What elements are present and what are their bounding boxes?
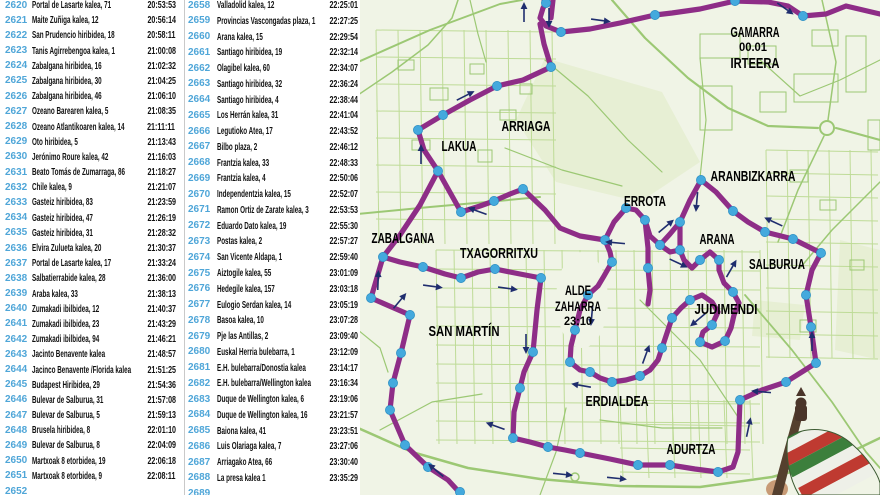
- stop-name-text: La presa kalea 1: [217, 472, 266, 484]
- checkpoint-dot: [635, 371, 644, 380]
- stop-time-text: 23:12:09: [329, 346, 358, 358]
- stop-time: 23:30:40: [316, 456, 356, 468]
- stop-time-text: 21:36:00: [147, 272, 176, 284]
- map-label-alde-zaharra-line1: ALDE: [565, 282, 591, 298]
- table-row: 2637Portal de Lasarte kalea, 1721:33:24: [0, 256, 183, 270]
- checkpoint-dot: [633, 460, 642, 469]
- checkpoint-dot: [695, 337, 704, 346]
- checkpoint-dot: [696, 175, 705, 184]
- checkpoint-dot: [760, 227, 769, 236]
- stop-name-text: Zumakadi ibilbidea, 94: [32, 333, 99, 345]
- stop-name-text: Euskal Herria bulebarra, 1: [217, 346, 295, 358]
- table-row: 2625Zabalgana hiribidea, 3021:04:25: [0, 74, 183, 88]
- stop-time: 22:46:12: [316, 141, 356, 153]
- stop-time: 22:50:06: [316, 172, 356, 184]
- stop-name: E.H. bulebarra/Donostia kalea: [217, 362, 316, 374]
- table-row: 2662Olagibel kalea, 6022:34:07: [186, 61, 360, 75]
- table-row: 2629Oto hiribidea, 521:13:43: [0, 135, 183, 149]
- table-row: 2646Bulevar de Salburua, 3121:57:08: [0, 393, 183, 407]
- stop-name: Baiona kalea, 41: [217, 425, 316, 437]
- table-row: 2669Frantzia kalea, 422:50:06: [186, 171, 360, 185]
- stop-name: Provincias Vascongadas plaza, 1: [217, 15, 316, 27]
- stop-number: 2665: [186, 110, 217, 121]
- table-row: 2679Pje las Antillas, 223:09:40: [186, 329, 360, 343]
- table-row: 2651Martxoak 8 etorbidea, 922:08:11: [0, 469, 183, 483]
- map-label-zabalgana: ZABALGANA: [372, 230, 435, 247]
- checkpoint-dot: [543, 442, 552, 451]
- stop-number: 2647: [0, 410, 32, 421]
- stop-name: Eulogio Serdan kalea, 14: [217, 299, 316, 311]
- stop-name: Gasteiz hiribidea, 31: [32, 227, 134, 239]
- stop-time-text: 20:58:11: [147, 29, 175, 41]
- checkpoint-dot: [508, 433, 517, 442]
- stop-name-text: Ramon Ortiz de Zarate kalea, 3: [217, 204, 309, 216]
- stop-name-text: Bulevar de Salburua, 31: [32, 394, 103, 406]
- stop-name-text: Arana kalea, 15: [217, 31, 263, 43]
- stop-name: Araba kalea, 33: [32, 288, 134, 300]
- stop-name: Bulevar de Salburua, 31: [32, 394, 134, 406]
- checkpoint-dot: [735, 395, 744, 404]
- stop-name-text: Zumakadi ibilbidea, 23: [32, 318, 99, 330]
- stop-time: 21:26:19: [134, 212, 174, 224]
- stop-number: 2636: [0, 243, 32, 254]
- stop-name-text: Luis Olariaga kalea, 7: [217, 440, 281, 452]
- stop-time-text: 21:48:57: [147, 348, 176, 360]
- stop-number: 2682: [186, 378, 217, 389]
- stop-time: 22:34:07: [316, 62, 356, 74]
- stop-number: 2658: [186, 0, 217, 11]
- stop-number: 2623: [0, 45, 32, 56]
- checkpoint-dot: [418, 262, 427, 271]
- stop-name-text: Santiago hiribidea, 4: [217, 94, 279, 106]
- table-row: 2622San Prudencio hiribidea, 1820:58:11: [0, 28, 183, 42]
- stop-name: Gasteiz hiribidea, 47: [32, 212, 134, 224]
- stop-name: Ozeano Atlantikoaren kalea, 14: [32, 121, 134, 133]
- stop-number: 2632: [0, 182, 32, 193]
- stop-time: 21:40:37: [134, 303, 174, 315]
- stop-time: 21:30:37: [134, 242, 174, 254]
- stop-number: 2666: [186, 126, 217, 137]
- stop-name: Elvira Zulueta kalea, 20: [32, 242, 134, 254]
- stop-time-text: 22:38:44: [329, 94, 358, 106]
- checkpoint-dot: [546, 62, 555, 71]
- stop-number: 2648: [0, 425, 32, 436]
- stop-name-text: Postas kalea, 2: [217, 235, 262, 247]
- stop-time-text: 21:40:37: [147, 303, 176, 315]
- stop-name-text: Budapest Hiribidea, 29: [32, 379, 100, 391]
- stop-name: Brusela hiribidea, 8: [32, 424, 134, 436]
- table-row: 2670Independentzia kalea, 1522:52:07: [186, 187, 360, 201]
- checkpoint-dot: [801, 290, 810, 299]
- checkpoint-dot: [816, 248, 825, 257]
- stop-number: 2669: [186, 173, 217, 184]
- stop-time: 21:18:27: [134, 166, 174, 178]
- stop-name: Salbatierrabide kalea, 28: [32, 272, 134, 284]
- map-label-adurtza: ADURTZA: [667, 441, 716, 458]
- stop-name: Bulevar de Salburua, 5: [32, 409, 134, 421]
- stop-name-text: Martxoak 8 etorbidea, 19: [32, 455, 106, 467]
- stop-name-text: Ozeano Barearen kalea, 5: [32, 105, 108, 117]
- stop-number: 2671: [186, 204, 217, 215]
- stop-name-text: Ozeano Atlantikoaren kalea, 14: [32, 121, 125, 133]
- stop-name-text: Aiztogile kalea, 55: [217, 267, 271, 279]
- stop-number: 2674: [186, 252, 217, 263]
- stop-number: 2688: [186, 472, 217, 483]
- table-row: 2672Eduardo Dato kalea, 1922:55:30: [186, 219, 360, 233]
- stop-number: 2622: [0, 30, 32, 41]
- route-map-canvas: GAMARRA00.01IRTEERAARRIAGALAKUAZABALGANA…: [360, 0, 880, 495]
- stop-name: Aiztogile kalea, 55: [217, 267, 316, 279]
- stop-name: Jerónimo Roure kalea, 42: [32, 151, 134, 163]
- table-row: 2648Brusela hiribidea, 822:01:10: [0, 423, 183, 437]
- stop-name: Hedegile kalea, 157: [217, 283, 316, 295]
- stop-time: 21:02:32: [134, 60, 174, 72]
- checkpoint-dot: [707, 320, 716, 329]
- stop-name-text: Frantzia kalea, 4: [217, 172, 266, 184]
- checkpoint-dot: [400, 440, 409, 449]
- checkpoint-dot: [781, 377, 790, 386]
- stop-name: Portal de Lasarte kalea, 71: [32, 0, 134, 11]
- stop-time-text: 22:08:11: [147, 470, 175, 482]
- stop-number: 2664: [186, 94, 217, 105]
- table-row: 2640Zumakadi ibilbidea, 1221:40:37: [0, 302, 183, 316]
- stop-name-text: San Prudencio hiribidea, 18: [32, 29, 115, 41]
- stop-time-text: 21:33:24: [147, 257, 176, 269]
- checkpoint-dot: [515, 383, 524, 392]
- table-row: 2667Bilbo plaza, 222:46:12: [186, 140, 360, 154]
- stop-name: Basoa kalea, 10: [217, 314, 316, 326]
- checkpoint-dot: [575, 448, 584, 457]
- table-row: 2687Arriagako Atea, 6623:30:40: [186, 455, 360, 469]
- stop-name: Zabalgana hiribidea, 16: [32, 60, 134, 72]
- stop-number: 2637: [0, 258, 32, 269]
- stop-time-text: 22:43:52: [329, 125, 358, 137]
- stop-name-text: Bulevar de Salburua, 8: [32, 439, 100, 451]
- checkpoint-dot: [528, 347, 537, 356]
- stop-time: 22:01:10: [134, 424, 174, 436]
- stop-number: 2661: [186, 47, 217, 58]
- checkpoint-dot: [720, 336, 729, 345]
- stop-name-text: Arriagako Atea, 66: [217, 456, 272, 468]
- map-label-gamarra: GAMARRA: [731, 24, 780, 41]
- stop-time-text: 21:43:29: [147, 318, 176, 330]
- stop-name: [217, 488, 316, 495]
- stop-name: Bulevar de Salburua, 8: [32, 439, 134, 451]
- stop-time-text: 23:05:19: [329, 299, 358, 311]
- checkpoint-dot: [366, 293, 375, 302]
- stop-time: 20:56:14: [134, 14, 174, 26]
- stop-name: Portal de Lasarte kalea, 17: [32, 257, 134, 269]
- table-row: 2624Zabalgana hiribidea, 1621:02:32: [0, 59, 183, 73]
- stop-time: 22:04:09: [134, 439, 174, 451]
- checkpoint-dot: [643, 263, 652, 272]
- stop-name-text: E.H. bulebarra/Donostia kalea: [217, 362, 306, 374]
- map-label-lakua: LAKUA: [442, 138, 477, 155]
- stop-time-text: 21:30:37: [147, 242, 176, 254]
- stop-name-text: Zumakadi ibilbidea, 12: [32, 303, 99, 315]
- table-row: 2632Chile kalea, 921:21:07: [0, 180, 183, 194]
- stop-time-text: 21:26:19: [147, 212, 176, 224]
- stop-name: E.H. bulebarra/Wellington kalea: [217, 377, 316, 389]
- stop-name-text: Duque de Wellington kalea, 16: [217, 409, 308, 421]
- stop-time-text: 23:01:09: [329, 267, 358, 279]
- stop-number: 2652: [0, 486, 32, 495]
- stop-number: 2639: [0, 288, 32, 299]
- map-label-alde-zaharra-time: 23:10: [564, 314, 592, 328]
- stop-time: 21:46:21: [134, 333, 174, 345]
- stop-number: 2620: [0, 0, 32, 11]
- checkpoint-dot: [713, 467, 722, 476]
- table-row: 2689: [186, 487, 360, 495]
- stop-number: 2650: [0, 455, 32, 466]
- stop-name-text: Los Herrán kalea, 31: [217, 109, 278, 121]
- checkpoint-dot: [565, 357, 574, 366]
- stop-name: Frantzia kalea, 33: [217, 157, 316, 169]
- stop-time: 22:41:04: [316, 109, 356, 121]
- checkpoint-dot: [489, 196, 498, 205]
- stop-time-text: 20:56:14: [147, 14, 176, 26]
- table-row: 2650Martxoak 8 etorbidea, 1922:06:18: [0, 454, 183, 468]
- stop-time-text: 23:21:57: [329, 409, 358, 421]
- stop-time: 20:58:11: [134, 29, 174, 41]
- stop-name: Jacinco Benavente /Florida kalea: [32, 364, 134, 376]
- stop-name-text: Martxoak 8 etorbidea, 9: [32, 470, 102, 482]
- stop-number: 2678: [186, 315, 217, 326]
- stop-time-text: 22:36:24: [329, 78, 358, 90]
- stop-name: Oto hiribidea, 5: [32, 136, 134, 148]
- stop-number: 2642: [0, 334, 32, 345]
- table-row: 2671Ramon Ortiz de Zarate kalea, 322:53:…: [186, 203, 360, 217]
- stop-time: 22:55:30: [316, 220, 356, 232]
- checkpoint-dot: [655, 240, 664, 249]
- map-label-arana: ARANA: [700, 231, 735, 248]
- stop-name-text: Gasteiz hiribidea, 47: [32, 212, 93, 224]
- table-row: 2638Salbatierrabide kalea, 2821:36:00: [0, 271, 183, 285]
- stop-time: 21:43:29: [134, 318, 174, 330]
- stop-number: 2667: [186, 141, 217, 152]
- stop-time: 22:53:53: [316, 204, 356, 216]
- stop-time: 22:57:27: [316, 235, 356, 247]
- stop-name: Eduardo Dato kalea, 19: [217, 220, 316, 232]
- table-row: 2663Santiago hiribidea, 3222:36:24: [186, 77, 360, 91]
- stop-time: 23:07:28: [316, 314, 356, 326]
- stop-number: 2670: [186, 189, 217, 200]
- stop-name-text: Baiona kalea, 41: [217, 425, 266, 437]
- stop-time-text: 23:30:40: [329, 456, 358, 468]
- stop-name: Zumakadi ibilbidea, 23: [32, 318, 134, 330]
- table-row: 2673Postas kalea, 222:57:27: [186, 234, 360, 248]
- stop-number: 2673: [186, 236, 217, 247]
- stop-time: 22:43:52: [316, 125, 356, 137]
- stop-name: Beato Tomás de Zumarraga, 86: [32, 166, 134, 178]
- stop-time-text: 21:28:32: [147, 227, 176, 239]
- stop-time: 22:32:14: [316, 46, 356, 58]
- stop-time: 20:53:53: [134, 0, 174, 11]
- stop-time: 23:01:09: [316, 267, 356, 279]
- stop-time-text: 23:09:40: [329, 330, 358, 342]
- stop-time: 22:38:44: [316, 94, 356, 106]
- stop-number: 2684: [186, 409, 217, 420]
- checkpoint-dot: [385, 405, 394, 414]
- stop-time: 22:59:40: [316, 251, 356, 263]
- stop-number: 2645: [0, 379, 32, 390]
- stop-name-text: Zabalgana hiribidea, 30: [32, 75, 102, 87]
- stop-number: 2635: [0, 227, 32, 238]
- stop-time: 21:00:08: [134, 45, 174, 57]
- stop-name-text: Zabalgana hiribidea, 46: [32, 90, 102, 102]
- stop-name-text: Provincias Vascongadas plaza, 1: [217, 15, 315, 27]
- stop-name: Chile kalea, 9: [32, 181, 134, 193]
- stop-number: 2663: [186, 78, 217, 89]
- timetable-right-column: 2658Valladolid kalea, 1222:25:012659Prov…: [186, 0, 360, 495]
- table-row: 2627Ozeano Barearen kalea, 521:08:35: [0, 104, 183, 118]
- route-timetable-flyer: 2620Portal de Lasarte kalea, 7120:53:532…: [0, 0, 880, 495]
- stop-time: 22:36:24: [316, 78, 356, 90]
- table-row: 2633Gasteiz hiribidea, 8321:23:59: [0, 195, 183, 209]
- stop-name-text: Bulevar de Salburua, 5: [32, 409, 100, 421]
- stop-time: 21:48:57: [134, 348, 174, 360]
- stop-name: Frantzia kalea, 4: [217, 172, 316, 184]
- stop-number: 2640: [0, 303, 32, 314]
- stop-time: 23:19:06: [316, 393, 356, 405]
- checkpoint-dot: [650, 10, 659, 19]
- stop-number: 2659: [186, 15, 217, 26]
- stop-time-text: 21:18:27: [147, 166, 176, 178]
- stop-number: 2681: [186, 362, 217, 373]
- stop-time: 21:08:35: [134, 105, 174, 117]
- stop-name: Martxoak 8 etorbidea, 9: [32, 470, 134, 482]
- stop-number: 2628: [0, 121, 32, 132]
- checkpoint-dot: [657, 343, 666, 352]
- stop-name-text: San Vicente Aldapa, 1: [217, 251, 282, 263]
- stop-name-text: Santiago hiribidea, 32: [217, 78, 282, 90]
- checkpoint-dot: [396, 348, 405, 357]
- stop-number: 2683: [186, 394, 217, 405]
- stop-name-text: Eduardo Dato kalea, 19: [217, 220, 286, 232]
- table-row: 2634Gasteiz hiribidea, 4721:26:19: [0, 211, 183, 225]
- checkpoint-dot: [667, 313, 676, 322]
- stop-time: 23:09:40: [316, 330, 356, 342]
- map-label-arriaga: ARRIAGA: [502, 118, 551, 135]
- stop-name: San Vicente Aldapa, 1: [217, 251, 316, 263]
- stop-time-text: 22:25:01: [329, 0, 358, 11]
- table-row: 2678Basoa kalea, 1023:07:28: [186, 313, 360, 327]
- stop-time-text: 21:11:11: [147, 121, 175, 133]
- checkpoint-dot: [438, 110, 447, 119]
- stop-time: 21:11:11: [134, 121, 174, 133]
- timetable-left-column: 2620Portal de Lasarte kalea, 7120:53:532…: [0, 0, 183, 495]
- stop-name-text: Beato Tomás de Zumarraga, 86: [32, 166, 125, 178]
- table-row: 2636Elvira Zulueta kalea, 2021:30:37: [0, 241, 183, 255]
- stop-time: 21:59:13: [134, 409, 174, 421]
- stop-number: 2633: [0, 197, 32, 208]
- stop-number: 2638: [0, 273, 32, 284]
- stop-name-text: Portal de Lasarte kalea, 17: [32, 257, 111, 269]
- stop-name-text: Chile kalea, 9: [32, 181, 72, 193]
- table-row: 2661Santiago hiribidea, 1922:32:14: [186, 45, 360, 59]
- stop-time: 21:51:25: [134, 364, 174, 376]
- stop-time: 21:54:36: [134, 379, 174, 391]
- checkpoint-dot: [378, 252, 387, 261]
- stop-time-text: 23:23:51: [329, 425, 358, 437]
- stop-time-text: 21:04:25: [147, 75, 176, 87]
- table-row: 2680Euskal Herria bulebarra, 123:12:09: [186, 345, 360, 359]
- stop-name-text: Frantzia kalea, 33: [217, 157, 269, 169]
- table-row: 2644Jacinco Benavente /Florida kalea21:5…: [0, 363, 183, 377]
- stop-time-text: 21:46:21: [147, 333, 176, 345]
- map-label-san-martin: SAN MARTÍN: [429, 323, 500, 340]
- stop-time: 21:28:32: [134, 227, 174, 239]
- stop-name: Legutioko Atea, 17: [217, 125, 316, 137]
- stop-name: Independentzia kalea, 15: [217, 188, 316, 200]
- stop-number: 2662: [186, 63, 217, 74]
- stop-time-text: 22:27:25: [329, 15, 358, 27]
- table-row: 2643Jacinto Benavente kalea21:48:57: [0, 347, 183, 361]
- map-label-irteera: IRTEERA: [731, 55, 780, 72]
- stop-name: Euskal Herria bulebarra, 1: [217, 346, 316, 358]
- table-row: 2635Gasteiz hiribidea, 3121:28:32: [0, 226, 183, 240]
- stop-number: 2668: [186, 157, 217, 168]
- stop-number: 2631: [0, 167, 32, 178]
- stop-time-text: 21:54:36: [147, 379, 176, 391]
- stop-time: 23:05:19: [316, 299, 356, 311]
- stop-time-text: 22:06:18: [147, 455, 176, 467]
- stop-name: Arriagako Atea, 66: [217, 456, 316, 468]
- stop-name-text: Jacinto Benavente kalea: [32, 348, 105, 360]
- stop-name: Duque de Wellington kalea, 6: [217, 393, 316, 405]
- stop-time: 22:52:07: [316, 188, 356, 200]
- stop-time-text: 22:55:30: [329, 220, 358, 232]
- stop-time: 23:12:09: [316, 346, 356, 358]
- stop-time-text: 21:08:35: [147, 105, 176, 117]
- stop-name: Olagibel kalea, 60: [217, 62, 316, 74]
- table-row: 2649Bulevar de Salburua, 822:04:09: [0, 438, 183, 452]
- stop-time: 22:29:54: [316, 31, 356, 43]
- stop-time: [134, 485, 174, 495]
- checkpoint-dot: [640, 215, 649, 224]
- checkpoint-dot: [455, 487, 464, 495]
- stop-name: Budapest Hiribidea, 29: [32, 379, 134, 391]
- map-label-judimendi: JUDIMENDI: [695, 301, 758, 318]
- stop-number: 2676: [186, 283, 217, 294]
- table-row: 2688La presa kalea 123:35:29: [186, 471, 360, 485]
- table-row: 2645Budapest Hiribidea, 2921:54:36: [0, 378, 183, 392]
- table-row: 2660Arana kalea, 1522:29:54: [186, 30, 360, 44]
- stop-number: 2685: [186, 425, 217, 436]
- stop-name-text: Salbatierrabide kalea, 28: [32, 272, 106, 284]
- stop-time: 21:06:10: [134, 90, 174, 102]
- stop-name: Maite Zuñiga kalea, 12: [32, 14, 134, 26]
- table-row: 2620Portal de Lasarte kalea, 7120:53:53: [0, 0, 183, 12]
- table-row: 2664Santiago hiribidea, 422:38:44: [186, 93, 360, 107]
- table-row: 2683Duque de Wellington kalea, 623:19:06: [186, 392, 360, 406]
- stop-number: 2644: [0, 364, 32, 375]
- stop-name: Tanis Agirrebengoa kalea, 1: [32, 45, 134, 57]
- stop-time-text: 21:59:13: [147, 409, 176, 421]
- checkpoint-dot: [456, 273, 465, 282]
- checkpoint-dot: [541, 0, 550, 8]
- table-row: 2623Tanis Agirrebengoa kalea, 121:00:08: [0, 44, 183, 58]
- stop-number: 2626: [0, 91, 32, 102]
- stop-time-text: 21:57:08: [147, 394, 176, 406]
- stop-name: Martxoak 8 etorbidea, 19: [32, 455, 134, 467]
- stop-time: 22:48:33: [316, 157, 356, 169]
- stop-name: Santiago hiribidea, 32: [217, 78, 316, 90]
- stop-time-text: 23:14:17: [329, 362, 358, 374]
- stop-time-text: 21:23:59: [147, 196, 176, 208]
- table-row: 2677Eulogio Serdan kalea, 1423:05:19: [186, 298, 360, 312]
- stop-number: 2621: [0, 15, 32, 26]
